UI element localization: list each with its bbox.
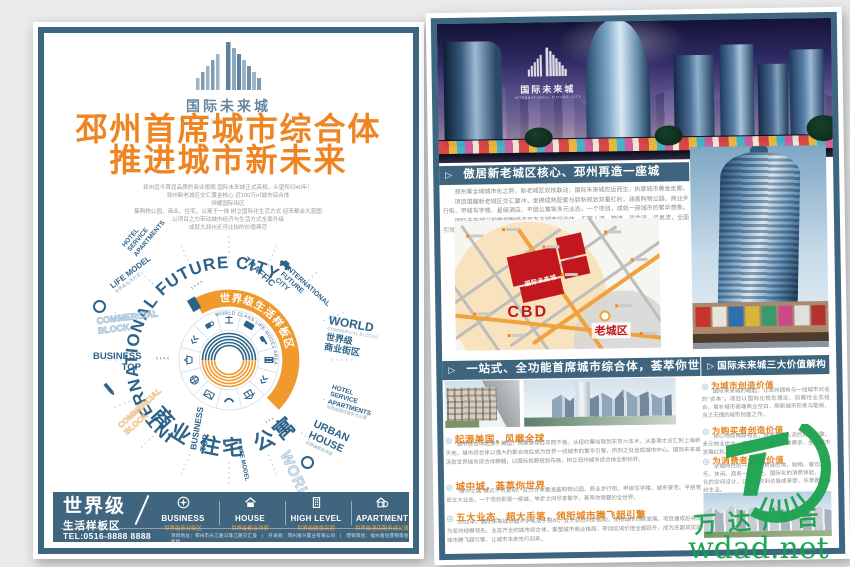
ring-marker-icon <box>301 456 314 469</box>
footer-divider <box>285 501 286 525</box>
billboard <box>745 306 760 326</box>
subhead-3-body: 2011年，国际未来城以超大手笔落子邳州，五大业态同步启动，领衔城市向新发展。项… <box>447 515 702 546</box>
map-poi <box>615 304 632 307</box>
glass-tower <box>718 151 801 311</box>
footer-item-house: HOUSE 世界级都会洋房 <box>218 496 282 532</box>
map-poi <box>473 312 490 315</box>
oldtown-label: 老城区 <box>592 322 631 339</box>
tower-icon <box>310 496 323 509</box>
value-body-1: 国际未来城的崛起，让邳州拥有与一线城市对话的“资本”。项目以国际化规划理念、前瞻… <box>702 386 830 420</box>
intro-line: 集购物公园、商业、住宅、公寓于一体 树立国际化生活方式 迎来都会大蓝图 <box>78 208 378 216</box>
billboard-row <box>695 305 825 327</box>
tower-left <box>443 41 503 147</box>
bottom-words-text: 商业 住宅 公寓 <box>147 402 303 460</box>
banner-arrow-icon: ▷ <box>448 365 455 375</box>
globe-icon <box>189 375 200 386</box>
residential-photo <box>444 380 520 428</box>
ring-marker-icon <box>93 300 106 313</box>
icon-ring <box>179 310 279 410</box>
white-tower <box>576 382 591 417</box>
headline-line1: 邳州首席城市综合体 <box>33 114 424 144</box>
banner-arrow-icon: ▷ <box>707 361 714 371</box>
subhead-1-body: 城市综合体起源于美国，风靡全球百年而不衰。从纽约曼哈顿到东京六本木，从香港太古汇… <box>445 437 700 468</box>
greenery <box>445 421 479 429</box>
billboard <box>728 306 743 326</box>
chevron-decor: › › › › <box>190 279 204 291</box>
billboard <box>695 307 710 327</box>
grade-main: 世界级 <box>63 498 126 516</box>
retail-podium <box>692 301 829 343</box>
footer-item-apartment: APARTMENT 世界级酒店服务式公寓 <box>350 496 414 532</box>
cbd-label: CBD <box>507 303 548 322</box>
diagram-label-business-l: BUSINESS TOP <box>93 352 141 373</box>
intro-line: 恒耀国际街区 <box>78 200 378 208</box>
section1-banner: ▷ 傲居新老城区核心、邳州再造一座城 <box>439 162 689 185</box>
mail-icon <box>204 390 215 400</box>
scale-icon <box>225 316 233 323</box>
brand-logo: 国际未来城 INTERNATIONAL FUTURE CITY <box>33 40 424 122</box>
banner-arrow-icon: ▷ <box>445 170 452 180</box>
serviced-apartment-icon <box>375 496 389 509</box>
section1-title: 傲居新老城区核心、邳州再造一座城 <box>463 162 689 185</box>
billboard <box>794 305 809 325</box>
watermark-site-text: wdad.net <box>688 531 829 566</box>
intro-line: 以项目之力带动城市经济与生活方式全面升级 <box>78 216 378 224</box>
chevrons-icon <box>259 375 268 384</box>
section3-banner: ▷ 国际未来城三大价值解构 <box>701 355 829 376</box>
logo-skyline-icon <box>524 46 570 77</box>
footer-item-business: BUSINESS 世界级商业街区 <box>151 496 215 532</box>
hero-logo-cn: 国际未来城 <box>508 82 588 96</box>
intro-copy: 邳州迄今首屈品质的商业旗舰 国际未来城正式亮相，众望所归40年！ 邳州新老城区交… <box>78 184 378 232</box>
map-poi <box>640 332 657 335</box>
basket-icon <box>185 356 193 364</box>
hero-logo: 国际未来城 INTERNATIONAL FUTURE CITY <box>507 46 588 100</box>
footer-item-highlevel: HIGH LEVEL 世界级瞰景高层 <box>284 496 348 532</box>
agency-watermark: 万达广告 wdad.net <box>686 424 850 567</box>
section3-title: 国际未来城三大价值解构 <box>717 355 829 376</box>
footer-info: 项目地址：邳州市长江路与珠江路交汇处 | 开发商：邳州富兴置业有限公司 | 营销… <box>171 533 409 545</box>
map-poi <box>604 230 621 233</box>
map-poi <box>508 334 525 337</box>
intro-line: 邳州新老城区交汇黄金核心 近100万㎡城市综合体 <box>78 192 378 200</box>
compass-badge-icon <box>177 496 190 509</box>
tower-render-image <box>690 145 829 349</box>
billboard <box>761 306 776 326</box>
phone-icon <box>225 399 234 402</box>
map-poi <box>502 228 519 231</box>
footer-rule <box>61 528 401 529</box>
billboard <box>811 305 826 325</box>
headline-line2: 推进城市新未来 <box>33 145 424 175</box>
cup-icon <box>205 321 215 330</box>
house-icon <box>244 496 257 509</box>
building-icon <box>265 357 274 363</box>
advert-scan-canvas: 国际未来城 INTERNATIONAL FUTURE CITY 邳州首席城市综合… <box>0 0 850 567</box>
map-poi <box>631 258 648 261</box>
map-poi <box>542 245 559 248</box>
footer-divider <box>219 501 220 525</box>
footer-bar: 世界级 生活样板区 BUSINESS 世界级商业街区 HOUSE 世界级都会洋房 <box>53 492 409 542</box>
map-poi <box>561 273 578 276</box>
location-map: 国际未来城 CBD 老城区 <box>454 218 661 351</box>
building <box>447 387 498 421</box>
poster-page-front: 国际未来城 INTERNATIONAL FUTURE CITY 邳州首席城市综合… <box>33 22 424 559</box>
bank-icon <box>243 389 256 401</box>
chevron-decor: ‹ ‹ ‹ ‹ <box>156 356 169 362</box>
hero-cityscape-render: 国际未来城 INTERNATIONAL FUTURE CITY <box>437 18 833 163</box>
logo-skyline-icon <box>192 40 266 90</box>
map-poi <box>466 234 483 237</box>
footer-divider <box>351 501 352 525</box>
pen-icon <box>103 383 115 397</box>
billboard <box>778 306 793 326</box>
billboard <box>712 307 727 327</box>
intro-line: 邳州迄今首屈品质的商业旗舰 国际未来城正式亮相，众望所归40年！ <box>78 184 378 192</box>
phone-number: TEL:0516-8888 8888 <box>63 531 151 541</box>
chevrons-icon <box>190 335 199 344</box>
cityscape-photo <box>523 377 676 426</box>
tower-right-2 <box>719 44 755 143</box>
tower-right-3 <box>758 64 789 142</box>
site-block <box>556 232 586 259</box>
svg-text:商业 住宅 公寓: 商业 住宅 公寓 <box>147 402 303 460</box>
divider-slash <box>135 495 150 525</box>
